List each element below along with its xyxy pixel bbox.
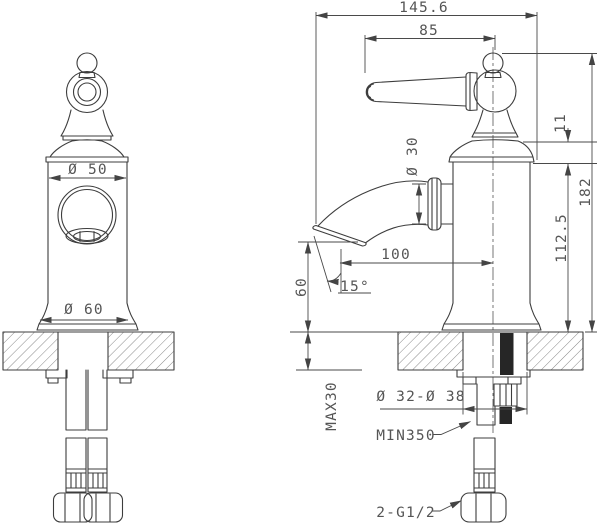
deck-side: [398, 332, 583, 370]
dim-supply-thread-label: 2-G1/2: [376, 505, 436, 521]
hoses-front: [66, 438, 107, 469]
handle-bell-front: [46, 140, 128, 162]
dim-base-diameter: Ø 60: [40, 302, 128, 320]
dim-body-height: 112.5: [554, 164, 570, 332]
dim-base-diameter-label: Ø 60: [64, 302, 104, 318]
dim-spout-diameter: Ø 30: [405, 136, 426, 224]
spout-outlet-face: [313, 226, 366, 247]
handle-skirt-front: [61, 110, 113, 140]
dim-spout-reach-label: 100: [381, 247, 411, 263]
mounting-nut-side: [494, 384, 517, 406]
dim-spout-diameter-label: Ø 30: [405, 136, 421, 176]
hose-side: [474, 438, 495, 469]
hex-nuts-front: [54, 493, 123, 522]
drawing-canvas: 145.6 85 Ø 50 Ø 60 Ø 30 100 15°: [0, 0, 600, 525]
threaded-stud-lower: [500, 407, 513, 424]
dim-total-height: 182: [502, 54, 597, 333]
hex-nut-side: [461, 493, 506, 522]
handle-bell-side: [449, 140, 534, 162]
dim-hose-length-label: MIN350: [376, 428, 436, 444]
dim-spout-angle-label: 15°: [340, 279, 370, 295]
dim-supply-thread: 2-G1/2: [376, 501, 461, 522]
base-side: [442, 303, 541, 330]
supply-pipe-side: [477, 384, 495, 425]
technical-drawing: 145.6 85 Ø 50 Ø 60 Ø 30 100 15°: [0, 0, 600, 525]
dim-overall-width-label: 145.6: [399, 0, 449, 16]
hose-threads-front: [66, 469, 107, 492]
dim-mounting-hole-label: Ø 32-Ø 38: [376, 389, 465, 405]
handle-ball-front: [77, 53, 97, 73]
lever-collar: [466, 73, 477, 111]
deck-front: [3, 332, 174, 370]
spout-ring: [428, 178, 453, 230]
handle-main-ball: [474, 70, 516, 112]
threaded-stud-upper: [500, 333, 514, 375]
mounting-hardware-front: [46, 370, 133, 383]
dim-hose-length: MIN350: [376, 422, 470, 445]
dim-handle-length-label: 85: [419, 23, 439, 39]
front-view: [3, 53, 174, 522]
lever-handle: [366, 77, 466, 106]
dim-spout-angle: 15°: [314, 236, 371, 295]
dim-deck-thickness-label: MAX30: [324, 381, 340, 431]
dimension-annotations: 145.6 85 Ø 50 Ø 60 Ø 30 100 15°: [40, 0, 597, 521]
spout-outlet-front: [58, 186, 116, 244]
dim-handle-cap-height-label: 11: [553, 113, 569, 133]
dim-body-diameter-label: Ø 50: [68, 162, 108, 178]
dim-handle-length: 85: [365, 23, 495, 73]
faucet-body-front: [48, 162, 127, 303]
dim-spout-outlet-height-label: 60: [294, 277, 310, 297]
faucet-body-side: [453, 162, 530, 303]
dim-deck-thickness: MAX30: [296, 332, 362, 431]
spout-tube: [318, 181, 428, 243]
mounting-washer-side: [457, 370, 530, 384]
hose-threads-side: [474, 469, 495, 492]
dim-spout-reach: 100: [340, 247, 493, 263]
dim-total-height-label: 182: [578, 177, 594, 207]
handle-skirt-side: [472, 110, 518, 137]
dim-body-diameter: Ø 50: [49, 162, 126, 178]
dim-handle-cap-height: 11: [523, 113, 597, 163]
supply-pipes-front: [66, 370, 107, 430]
dim-body-height-label: 112.5: [554, 213, 570, 263]
